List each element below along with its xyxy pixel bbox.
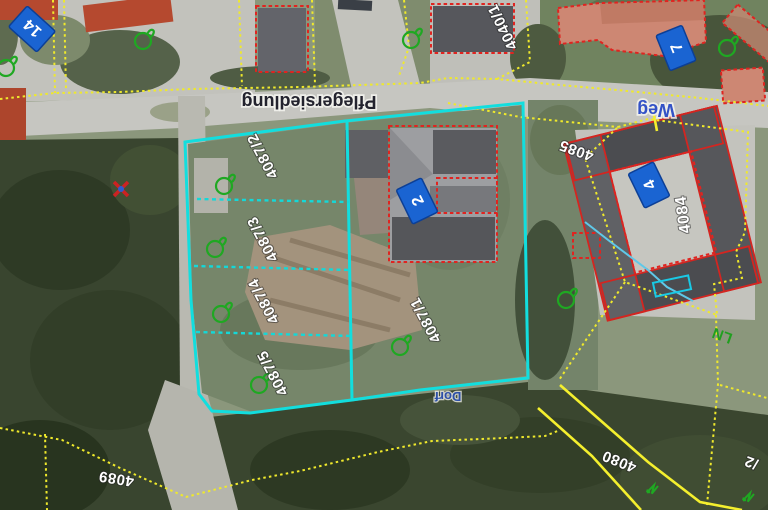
building-roof-salmon bbox=[721, 68, 765, 104]
building-roof-red bbox=[0, 88, 26, 140]
car bbox=[338, 0, 372, 11]
cadastral-map: 14 7 2 4 4040/1 4087/2 4087/3 4087/4 408… bbox=[0, 0, 768, 510]
street-label-weg: Weg bbox=[637, 100, 675, 120]
building-roof-gray bbox=[258, 8, 306, 72]
street-label-dorf: Dorf bbox=[434, 389, 461, 404]
map-canvas[interactable]: 14 7 2 4 4040/1 4087/2 4087/3 4087/4 408… bbox=[0, 0, 768, 510]
street-label-pflegersiedlung: Pflegersiedlung bbox=[241, 92, 376, 112]
